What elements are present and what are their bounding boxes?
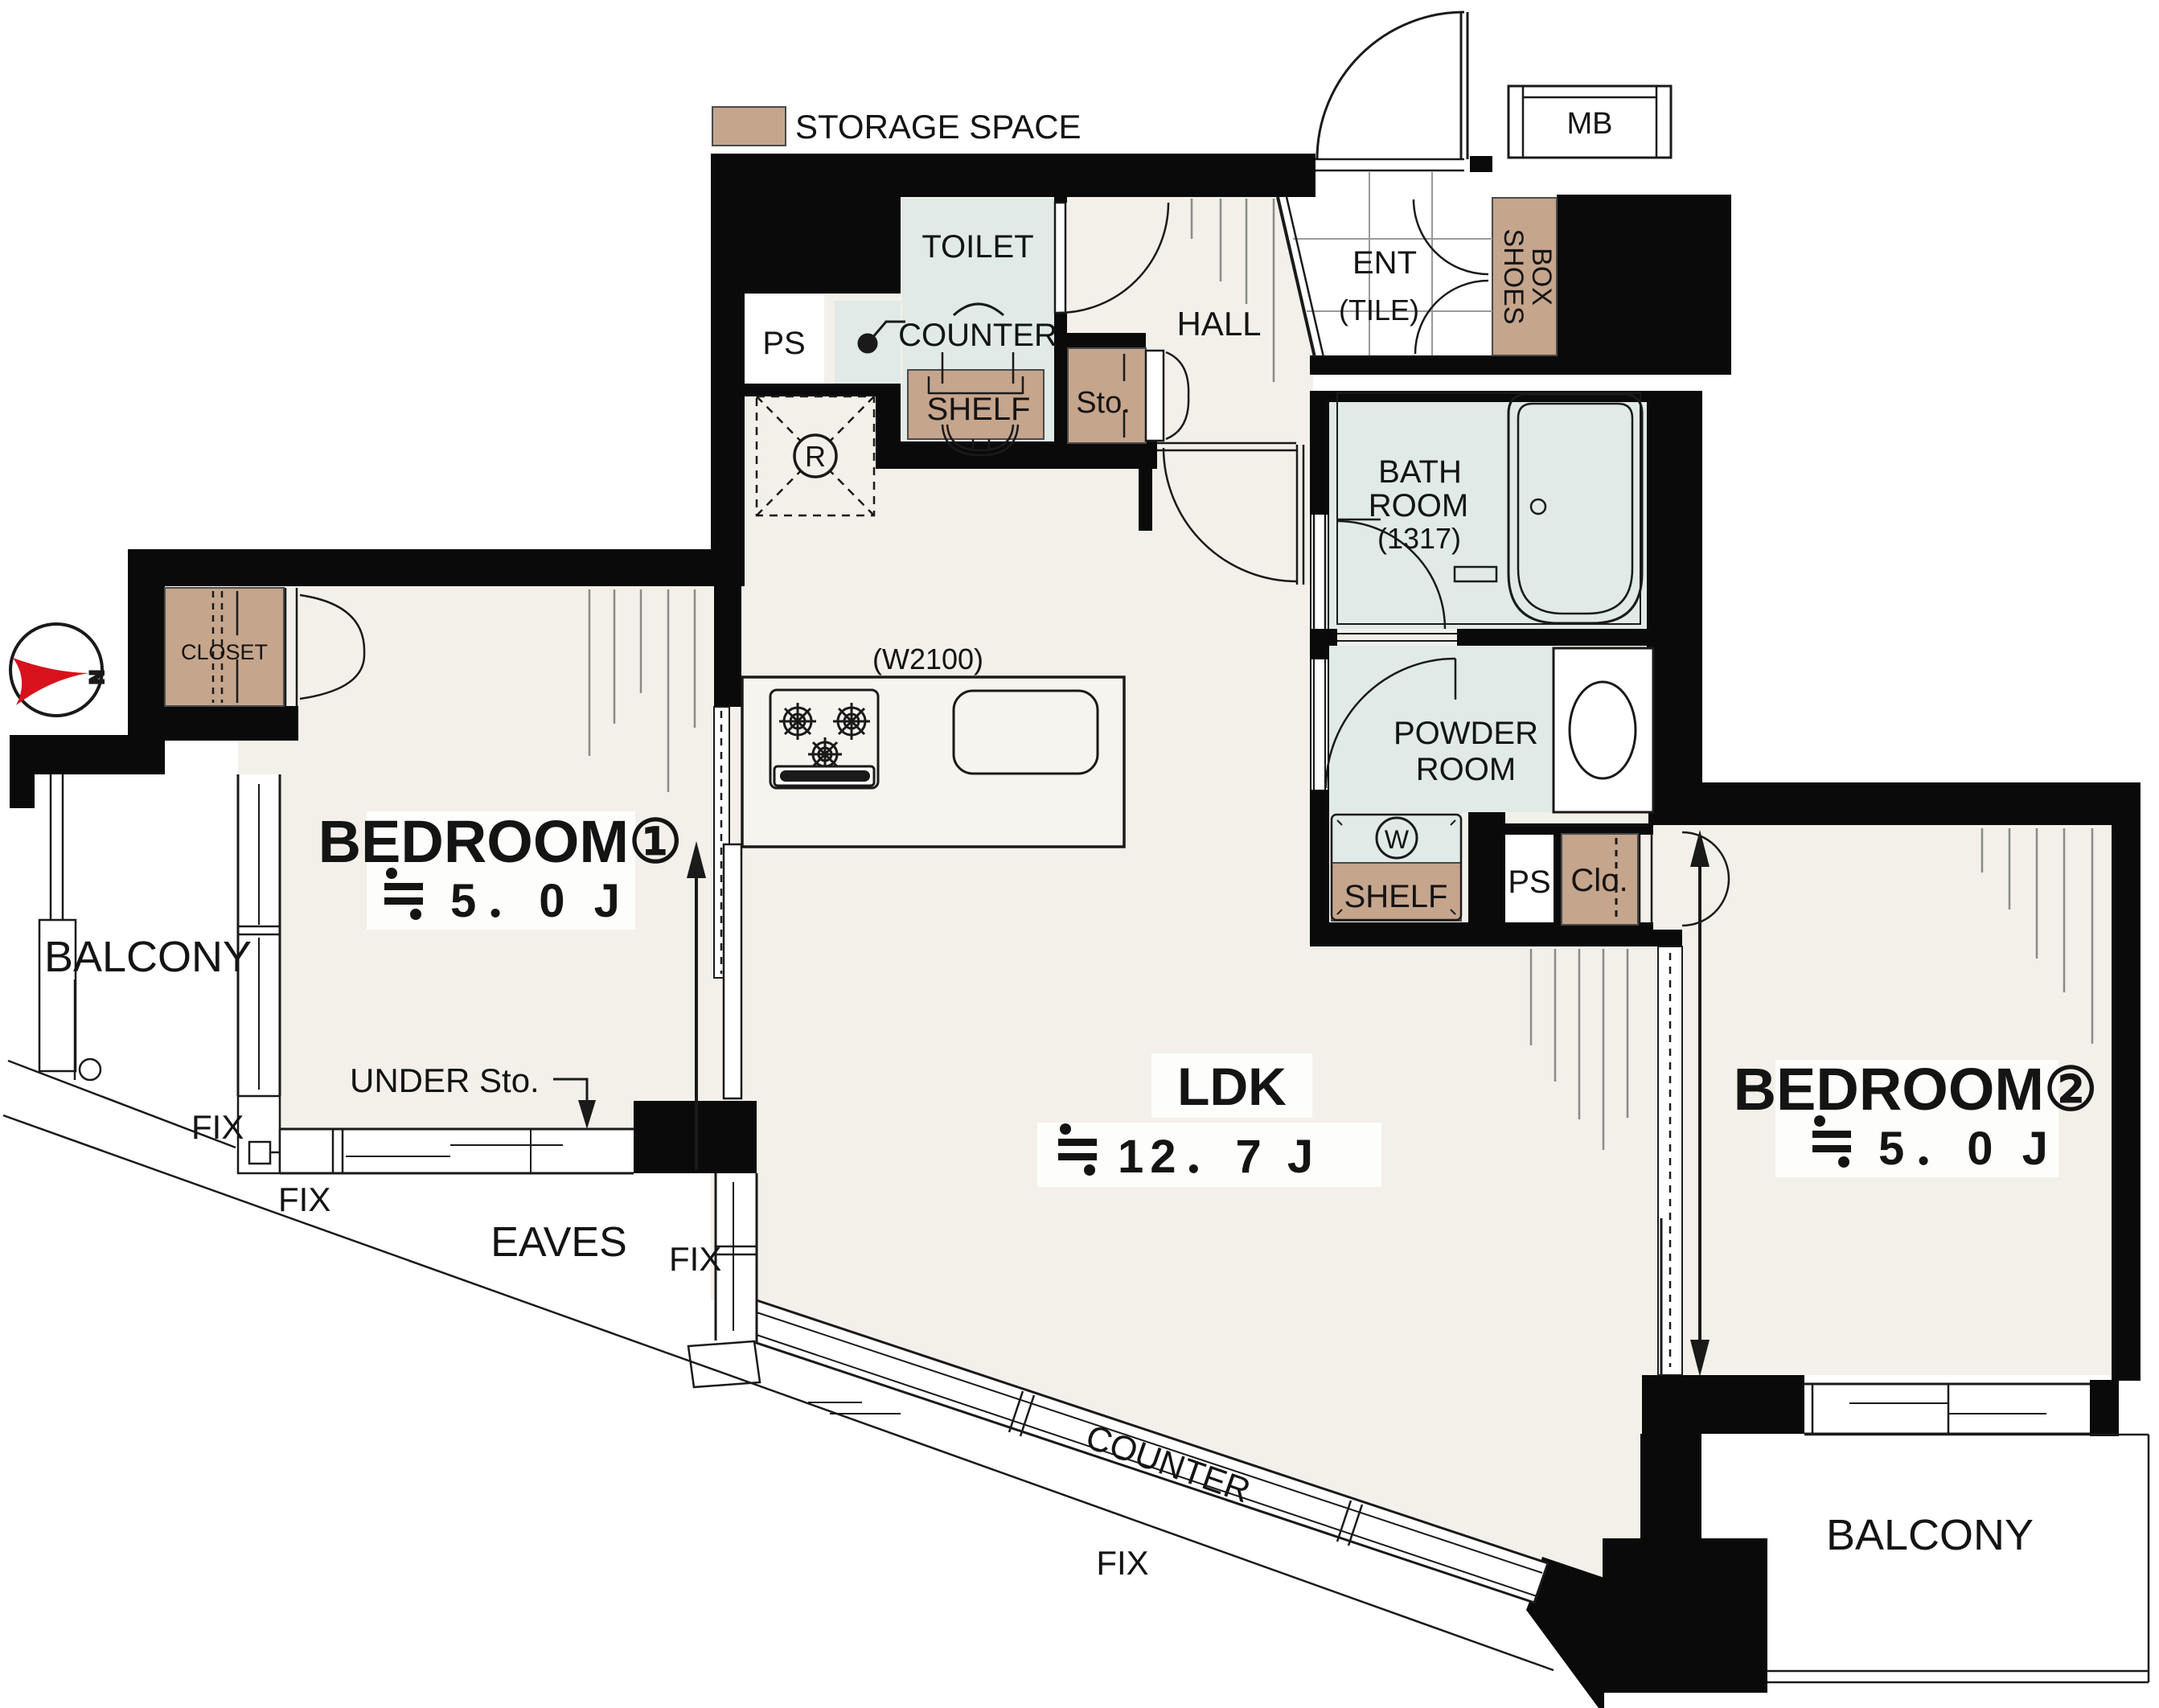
svg-text:(TILE): (TILE) [1339,294,1419,326]
svg-text:N: N [85,670,107,684]
svg-text:FIX: FIX [191,1108,244,1146]
svg-text:FIX: FIX [278,1180,330,1218]
svg-text:CLOSET: CLOSET [181,640,268,664]
svg-text:MB: MB [1567,107,1613,141]
svg-text:HALL: HALL [1176,305,1261,343]
svg-text:TOILET: TOILET [921,229,1033,265]
svg-text:STORAGE SPACE: STORAGE SPACE [795,108,1082,146]
svg-text:COUNTER: COUNTER [898,318,1057,353]
svg-text:PS: PS [1508,864,1550,900]
svg-text:PS: PS [762,326,805,361]
svg-text:BEDROOM②: BEDROOM② [1734,1056,2098,1123]
svg-text:BEDROOM①: BEDROOM① [318,808,683,875]
svg-text:Clo.: Clo. [1570,863,1627,898]
svg-text:FIX: FIX [1096,1544,1148,1582]
svg-text:EAVES: EAVES [490,1219,627,1266]
svg-text:5．0 J: 5．0 J [450,875,628,927]
svg-text:12．7 J: 12．7 J [1118,1131,1320,1183]
svg-text:ROOM: ROOM [1416,752,1516,787]
svg-text:ENT: ENT [1352,245,1417,281]
svg-text:(W2100): (W2100) [872,643,983,675]
svg-text:BOX: BOX [1526,248,1557,306]
svg-text:BALCONY: BALCONY [44,933,252,981]
svg-text:BATH: BATH [1378,454,1462,490]
svg-text:5．0 J: 5．0 J [1878,1123,2056,1175]
svg-text:R: R [805,440,826,473]
svg-text:W: W [1385,825,1410,854]
svg-text:UNDER Sto.: UNDER Sto. [350,1061,540,1099]
svg-text:Sto.: Sto. [1076,386,1131,420]
svg-text:LDK: LDK [1177,1057,1287,1116]
svg-text:ROOM: ROOM [1369,488,1468,523]
svg-text:SHELF: SHELF [927,392,1031,427]
svg-text:SHOES: SHOES [1498,228,1529,324]
svg-text:BALCONY: BALCONY [1826,1511,2034,1559]
svg-text:SHELF: SHELF [1344,879,1448,914]
svg-text:FIX: FIX [669,1240,721,1278]
svg-text:(1317): (1317) [1377,522,1461,555]
svg-text:POWDER: POWDER [1393,716,1538,751]
